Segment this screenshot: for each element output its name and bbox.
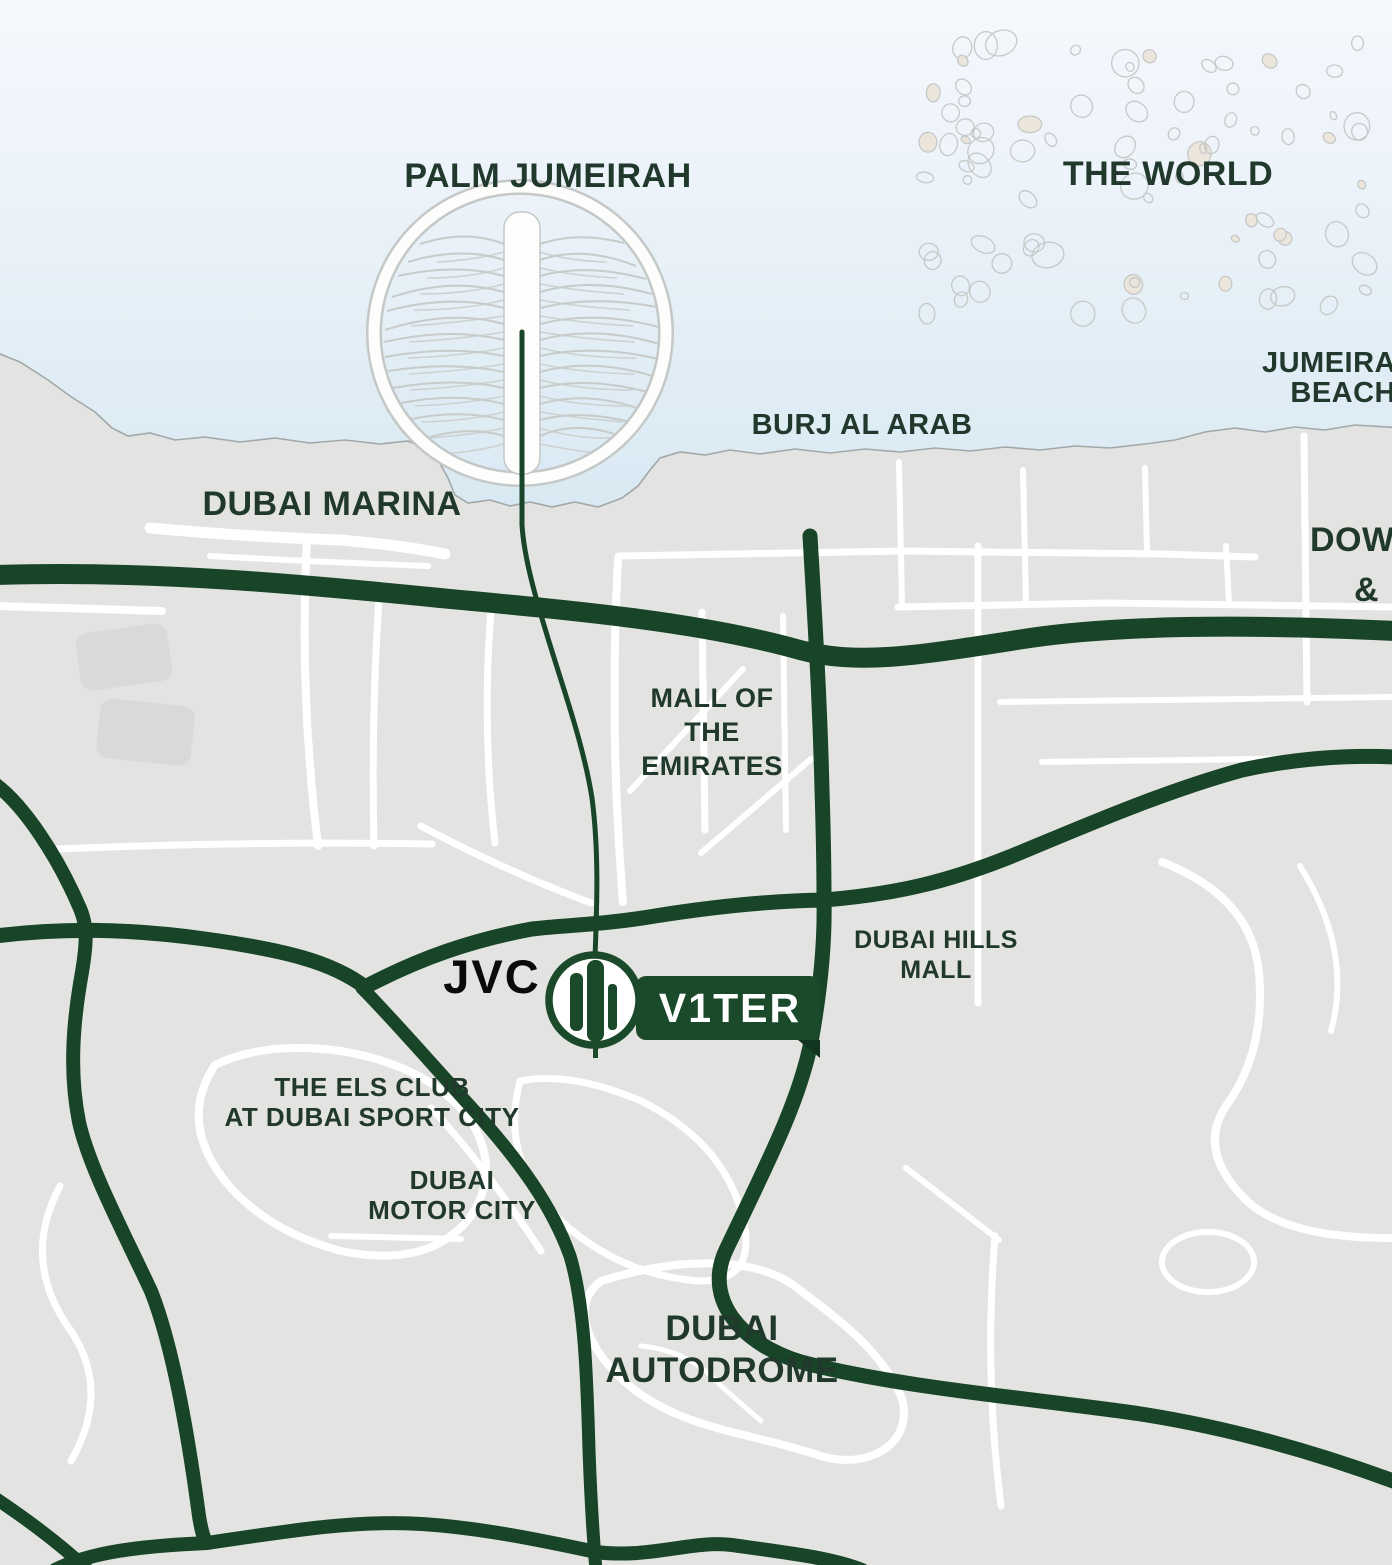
- label-jvc: JVC: [443, 949, 540, 1004]
- label-dubai-marina: DUBAI MARINA: [202, 484, 461, 524]
- label-line: BEACH: [1262, 378, 1392, 408]
- label-line: &: [1354, 570, 1392, 610]
- label-dubai-hills-mall: DUBAI HILLS MALL: [854, 926, 1018, 985]
- label-line: THE WORLD: [1063, 154, 1273, 194]
- label-line: MOTOR CITY: [368, 1196, 536, 1226]
- label-line: DUBAI MARINA: [202, 484, 461, 524]
- label-dubai-autodrome: DUBAI AUTODROME: [605, 1308, 838, 1392]
- label-line: JVC: [443, 949, 540, 1004]
- label-line: PALM JUMEIRAH: [404, 156, 691, 196]
- label-els-club: THE ELS CLUB AT DUBAI SPORT CITY: [224, 1073, 519, 1133]
- label-downtown: DOW &: [1310, 520, 1392, 610]
- label-jumeira-beach: JUMEIRA BEACH: [1262, 348, 1392, 409]
- label-line: BURJ AL ARAB: [752, 408, 973, 442]
- label-line: EMIRATES: [641, 750, 783, 784]
- label-palm-jumeirah: PALM JUMEIRAH: [404, 156, 691, 196]
- label-line: MALL: [854, 956, 1018, 986]
- label-line: THE ELS CLUB: [224, 1073, 519, 1103]
- project-badge-label: V1TER: [659, 985, 801, 1031]
- label-mall-of-the-emirates: MALL OF THE EMIRATES: [641, 682, 783, 783]
- label-line: DUBAI HILLS: [854, 926, 1018, 956]
- label-line: THE: [641, 716, 783, 750]
- label-line: DUBAI: [368, 1166, 536, 1196]
- label-line: AUTODROME: [605, 1350, 838, 1392]
- label-burj-al-arab: BURJ AL ARAB: [752, 408, 973, 442]
- dubai-location-map: V1TER PALM JUMEIRAH THE WORLD JUMEIRA BE…: [0, 0, 1392, 1565]
- label-line: MALL OF: [641, 682, 783, 716]
- label-line: JUMEIRA: [1262, 348, 1392, 378]
- label-line: AT DUBAI SPORT CITY: [224, 1103, 519, 1133]
- label-dubai-motor-city: DUBAI MOTOR CITY: [368, 1166, 536, 1226]
- label-the-world: THE WORLD: [1063, 154, 1273, 194]
- label-line: DOW: [1310, 520, 1392, 560]
- label-line: DUBAI: [605, 1308, 838, 1350]
